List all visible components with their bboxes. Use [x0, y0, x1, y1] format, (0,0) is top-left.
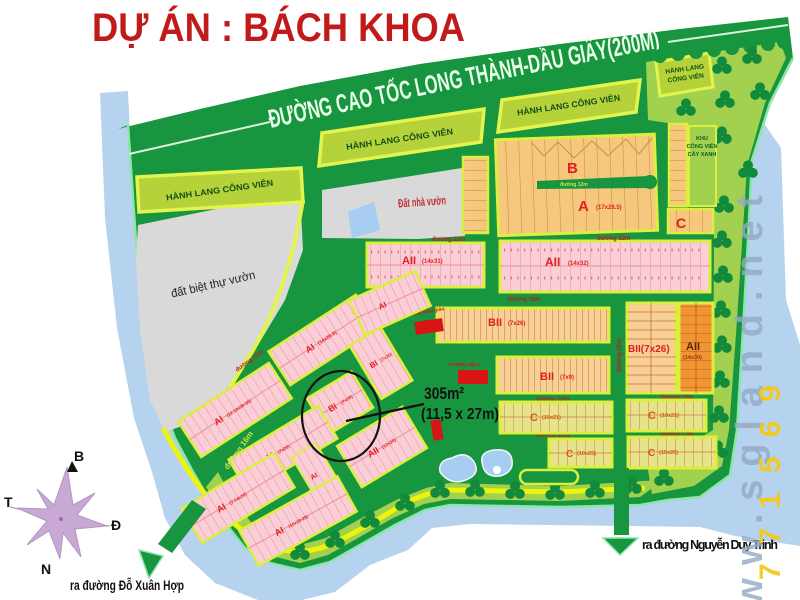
svg-text:C: C	[676, 215, 686, 231]
svg-text:(7x9): (7x9)	[560, 375, 574, 381]
svg-text:C: C	[648, 448, 655, 459]
svg-text:ra đường Đỗ Xuân Hợp: ra đường Đỗ Xuân Hợp	[70, 577, 184, 593]
svg-text:CÂY XANH: CÂY XANH	[688, 151, 717, 158]
svg-text:BII: BII	[540, 371, 554, 383]
svg-text:AII: AII	[545, 255, 560, 269]
svg-text:(14x32): (14x32)	[568, 261, 589, 267]
svg-text:đường 12m: đường 12m	[560, 182, 588, 188]
svg-text:B: B	[74, 448, 84, 464]
svg-text:C: C	[648, 410, 656, 422]
svg-text:(7x26): (7x26)	[508, 321, 525, 327]
svg-text:KHU: KHU	[696, 136, 708, 142]
svg-text:(14x31): (14x31)	[422, 259, 443, 265]
svg-text:DỰ ÁN : BÁCH KHOA: DỰ ÁN : BÁCH KHOA	[92, 5, 465, 50]
svg-text:Đ: Đ	[111, 517, 121, 533]
svg-text:CÔNG VIÊN: CÔNG VIÊN	[687, 142, 718, 150]
svg-text:(17x26.5): (17x26.5)	[596, 205, 622, 211]
svg-text:C: C	[566, 449, 573, 460]
svg-text:(14x30): (14x30)	[683, 355, 702, 361]
svg-text:trường cấp 1: trường cấp 1	[449, 361, 480, 368]
svg-text:đường 15m: đường 15m	[617, 339, 623, 372]
svg-text:BII(7x26): BII(7x26)	[628, 344, 670, 355]
svg-text:T: T	[4, 494, 13, 510]
svg-text:305m²: 305m²	[424, 384, 464, 403]
svg-text:AII: AII	[686, 341, 700, 353]
svg-text:(10x21): (10x21)	[660, 413, 679, 419]
svg-text:(10x21): (10x21)	[542, 415, 561, 421]
svg-text:C: C	[530, 412, 538, 424]
svg-text:A: A	[578, 198, 589, 215]
svg-text:(10x25): (10x25)	[577, 451, 596, 457]
svg-text:AII: AII	[402, 255, 416, 267]
svg-text:(10x26): (10x26)	[659, 450, 678, 456]
svg-text:B: B	[567, 160, 578, 177]
svg-text:BII: BII	[488, 317, 502, 329]
svg-text:đường 12m: đường 12m	[432, 237, 465, 243]
svg-text:(11,5 x 27m): (11,5 x 27m)	[421, 406, 499, 423]
svg-text:đường 12m: đường 12m	[597, 236, 630, 242]
svg-text:N: N	[41, 561, 51, 577]
svg-text:đường 18m: đường 18m	[507, 297, 540, 303]
